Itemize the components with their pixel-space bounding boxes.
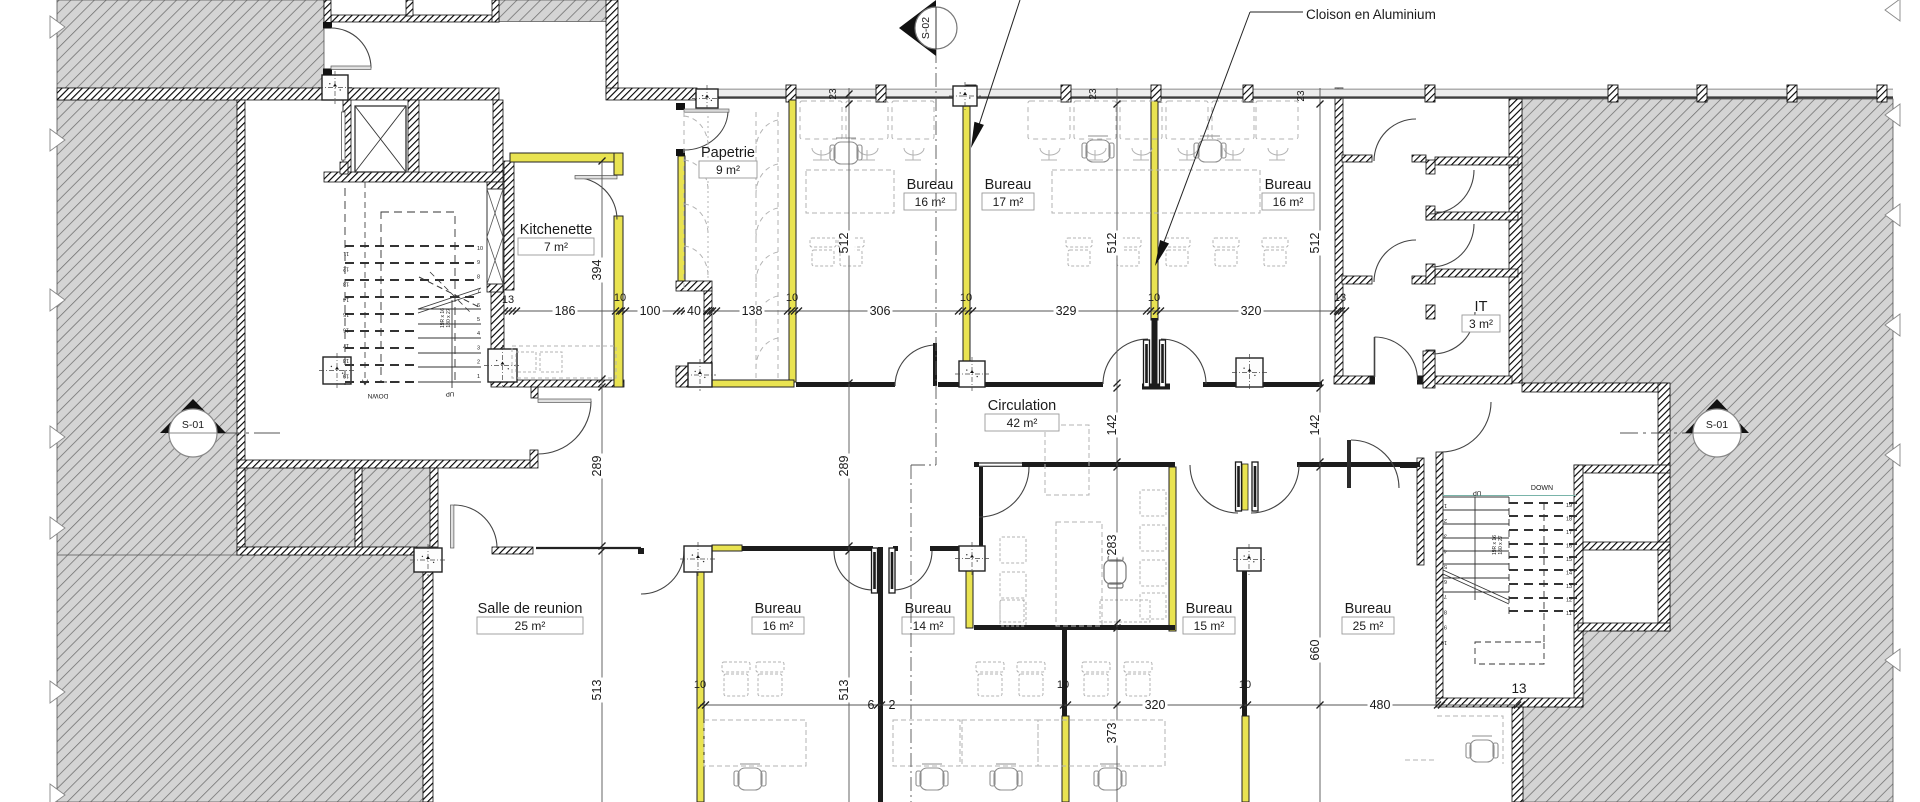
svg-text:14: 14 [1566,571,1572,577]
svg-text:320: 320 [1241,304,1262,318]
svg-text:512: 512 [837,233,851,254]
svg-text:19: 19 [1566,503,1572,509]
svg-text:7 m²: 7 m² [544,240,568,254]
svg-text:5: 5 [1444,563,1447,569]
svg-text:UP: UP [1472,489,1481,496]
svg-text:15 m²: 15 m² [1194,619,1225,633]
svg-text:320: 320 [1145,698,1166,712]
svg-text:142: 142 [1308,415,1322,436]
svg-text:15: 15 [343,311,349,317]
svg-text:16: 16 [1566,544,1572,550]
svg-text:23: 23 [828,88,839,100]
svg-text:660: 660 [1308,640,1322,661]
svg-text:3: 3 [1444,532,1447,538]
svg-text:12: 12 [343,265,349,271]
svg-text:10: 10 [960,292,972,304]
svg-text:S-01: S-01 [182,419,204,431]
svg-text:10: 10 [1148,292,1160,304]
svg-text:25 m²: 25 m² [515,619,546,633]
svg-text:15: 15 [1566,557,1572,563]
svg-text:4: 4 [477,331,480,337]
svg-text:138: 138 [742,304,763,318]
svg-text:17 m²: 17 m² [993,195,1024,209]
svg-text:12: 12 [1566,598,1572,604]
svg-text:S-02: S-02 [920,17,932,39]
svg-text:480: 480 [1370,698,1391,712]
svg-text:13: 13 [1511,681,1526,696]
svg-text:DOWN: DOWN [367,392,388,399]
svg-text:2: 2 [477,360,480,366]
svg-text:6: 6 [868,698,875,712]
svg-text:7: 7 [477,289,480,295]
svg-text:17: 17 [343,342,349,348]
svg-text:DOWN: DOWN [1531,485,1553,492]
svg-text:8: 8 [477,274,480,280]
svg-text:13: 13 [502,294,514,306]
svg-text:1: 1 [1444,502,1447,508]
svg-text:283: 283 [1105,535,1119,556]
svg-text:2: 2 [1444,517,1447,523]
svg-text:2: 2 [889,698,896,712]
svg-text:513: 513 [590,680,604,701]
svg-text:5: 5 [477,317,480,323]
svg-text:513: 513 [837,680,851,701]
svg-text:7: 7 [1444,593,1447,599]
svg-text:13: 13 [1566,584,1572,590]
svg-text:IT: IT [1475,299,1488,315]
svg-text:19: 19 [343,372,349,378]
svg-text:Bureau: Bureau [1265,177,1312,193]
svg-text:180 x 27: 180 x 27 [1498,535,1504,554]
svg-text:Papetrie: Papetrie [701,145,755,161]
svg-text:13: 13 [343,281,349,287]
svg-text:1: 1 [477,374,480,380]
svg-text:180 x 27: 180 x 27 [446,308,452,327]
svg-text:10: 10 [1239,679,1251,691]
svg-text:11: 11 [343,250,349,256]
svg-text:16 m²: 16 m² [1273,195,1304,209]
svg-text:14 m²: 14 m² [913,619,944,633]
svg-text:11: 11 [1566,611,1572,617]
svg-text:23: 23 [1296,90,1307,102]
svg-text:16 m²: 16 m² [763,619,794,633]
svg-text:9 m²: 9 m² [716,163,740,177]
svg-text:13: 13 [1334,292,1346,304]
svg-text:42 m²: 42 m² [1007,416,1038,430]
svg-text:Cloison en Aluminium: Cloison en Aluminium [1306,7,1436,22]
svg-text:329: 329 [1056,304,1077,318]
svg-text:4: 4 [1444,548,1447,554]
svg-text:289: 289 [590,456,604,477]
svg-text:289: 289 [837,456,851,477]
svg-text:16 m²: 16 m² [915,195,946,209]
svg-text:10: 10 [694,679,706,691]
svg-text:8: 8 [1444,608,1447,614]
svg-text:373: 373 [1105,723,1119,744]
svg-text:Bureau: Bureau [1345,601,1392,617]
svg-text:Circulation: Circulation [988,398,1057,414]
svg-text:25 m²: 25 m² [1353,619,1384,633]
svg-text:10: 10 [1441,639,1447,645]
svg-text:6: 6 [1444,578,1447,584]
svg-text:23: 23 [1088,88,1099,100]
svg-text:10: 10 [477,246,483,252]
svg-text:100: 100 [640,304,661,318]
svg-text:UP: UP [445,390,454,397]
svg-text:Salle de reunion: Salle de reunion [478,601,583,617]
svg-text:306: 306 [870,304,891,318]
svg-text:18: 18 [1566,517,1572,523]
svg-text:Bureau: Bureau [985,177,1032,193]
svg-text:9: 9 [477,260,480,266]
svg-text:Kitchenette: Kitchenette [520,222,593,238]
svg-text:9: 9 [1444,624,1447,630]
svg-text:14: 14 [343,296,349,302]
svg-text:186: 186 [555,304,576,318]
svg-text:3: 3 [477,345,480,351]
svg-text:3 m²: 3 m² [1469,317,1493,331]
svg-text:16: 16 [343,327,349,333]
svg-text:Bureau: Bureau [907,177,954,193]
svg-text:18: 18 [343,357,349,363]
svg-text:10: 10 [786,292,798,304]
svg-text:Bureau: Bureau [755,601,802,617]
svg-text:6: 6 [477,303,480,309]
svg-text:10: 10 [614,292,626,304]
svg-text:142: 142 [1105,415,1119,436]
svg-text:17: 17 [1566,530,1572,536]
svg-text:10: 10 [1057,679,1069,691]
svg-text:394: 394 [590,260,604,281]
svg-text:Bureau: Bureau [905,601,952,617]
svg-text:40: 40 [687,304,701,318]
svg-text:512: 512 [1105,233,1119,254]
svg-text:S-01: S-01 [1706,419,1728,431]
svg-text:Bureau: Bureau [1186,601,1233,617]
svg-text:512: 512 [1308,233,1322,254]
